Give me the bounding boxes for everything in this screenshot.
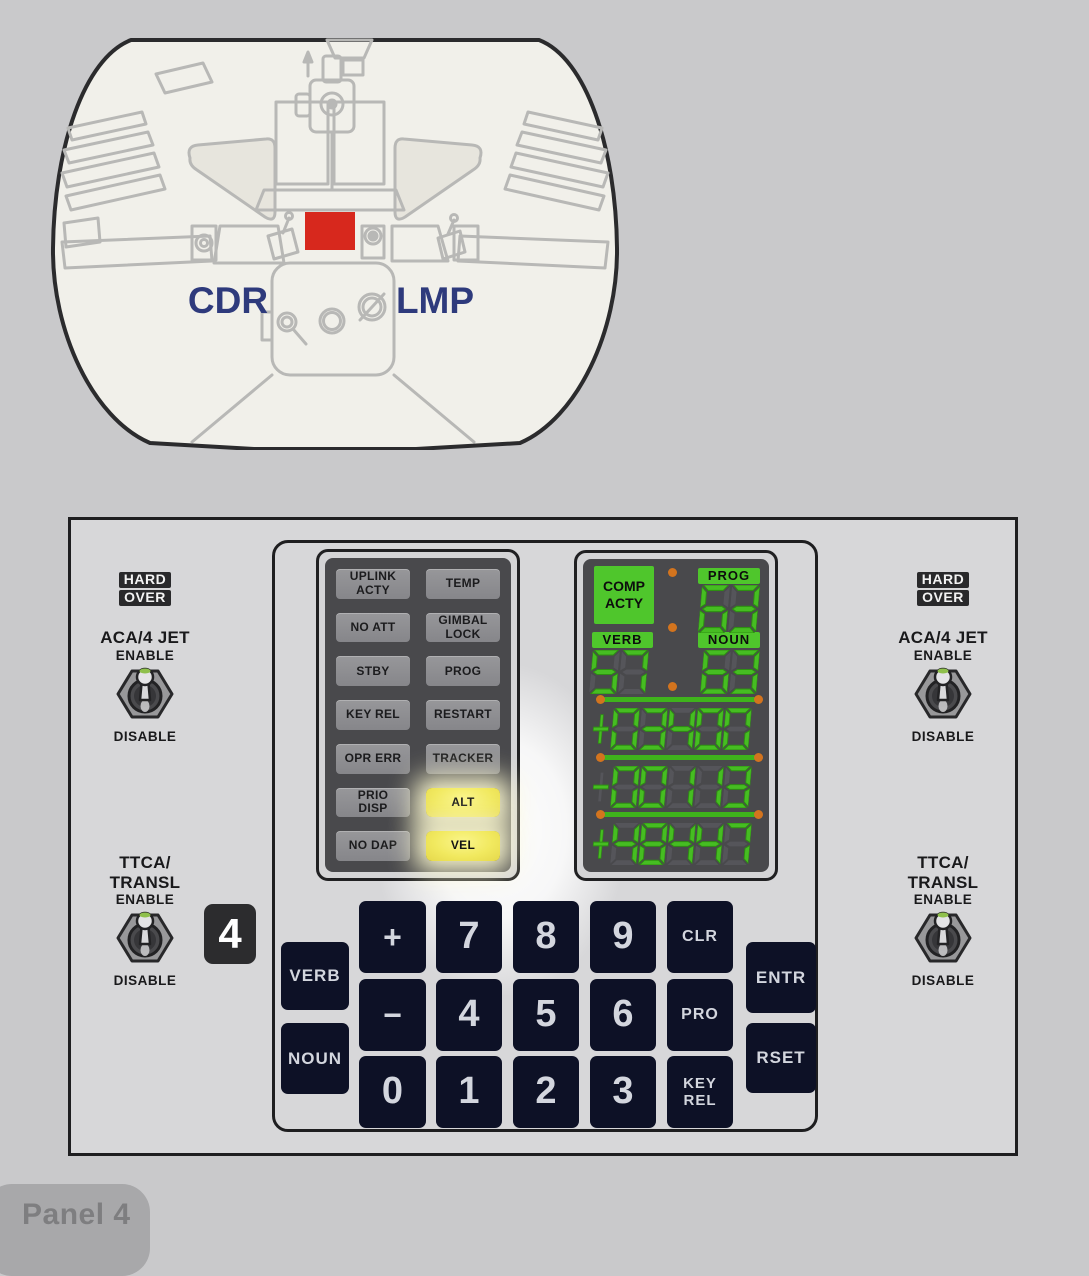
ttca-transl-toggle-left[interactable] [115, 909, 175, 967]
disable-label: DISABLE [888, 729, 998, 744]
light-uplink-acty: UPLINK ACTY [336, 569, 410, 599]
register-3 [589, 823, 752, 865]
separator-dot [754, 753, 763, 762]
minus-key[interactable]: − [359, 979, 426, 1051]
hard-label: HARD [917, 572, 969, 588]
ttca-transl-toggle-right[interactable] [913, 909, 973, 967]
disable-label: DISABLE [888, 973, 998, 988]
light-prog: PROG [426, 656, 500, 686]
status-light-panel: UPLINK ACTY TEMP NO ATT GIMBAL LOCK STBY… [316, 549, 520, 881]
register-2 [589, 766, 752, 808]
key-rel-key[interactable]: KEY REL [667, 1056, 733, 1128]
enable-label: ENABLE [888, 892, 998, 907]
digit-9-key[interactable]: 9 [590, 901, 656, 973]
digit-8-key[interactable]: 8 [513, 901, 579, 973]
aca-4jet-title: ACA/4 JET [888, 628, 998, 648]
status-lights-grid: UPLINK ACTY TEMP NO ATT GIMBAL LOCK STBY… [336, 569, 500, 861]
aca-4jet-toggle-right[interactable] [913, 665, 973, 723]
register-separator [603, 755, 756, 760]
light-no-att: NO ATT [336, 613, 410, 643]
entr-key[interactable]: ENTR [746, 942, 816, 1013]
hard-over-badge: HARDOVER [90, 572, 200, 606]
prog-digits [698, 585, 760, 633]
separator-dot [668, 568, 677, 577]
left-ttca-control-group: TTCA/ TRANSL ENABLE DISABLE [90, 853, 200, 988]
disable-label: DISABLE [90, 729, 200, 744]
ttca-transl-title: TTCA/ TRANSL [90, 853, 200, 892]
light-tracker: TRACKER [426, 744, 500, 774]
light-prio-disp: PRIO DISP [336, 788, 410, 818]
digit-4-key[interactable]: 4 [436, 979, 502, 1051]
hard-over-badge: HARDOVER [888, 572, 998, 606]
digit-1-key[interactable]: 1 [436, 1056, 502, 1128]
plus-key[interactable]: + [359, 901, 426, 973]
separator-dot [668, 682, 677, 691]
register-1 [589, 708, 752, 750]
status-light-screen: UPLINK ACTY TEMP NO ATT GIMBAL LOCK STBY… [325, 558, 511, 872]
light-key-rel: KEY REL [336, 700, 410, 730]
aca-4jet-title: ACA/4 JET [90, 628, 200, 648]
register-separator [603, 697, 756, 702]
verb-digits [589, 650, 649, 694]
pro-key[interactable]: PRO [667, 979, 733, 1051]
over-label: OVER [917, 590, 969, 606]
enable-label: ENABLE [90, 892, 200, 907]
disable-label: DISABLE [90, 973, 200, 988]
aca-4jet-toggle-left[interactable] [115, 665, 175, 723]
comp-acty-light: COMP ACTY [594, 566, 654, 624]
cdr-label: CDR [188, 280, 268, 321]
verb-key[interactable]: VERB [281, 942, 349, 1010]
rset-key[interactable]: RSET [746, 1023, 816, 1093]
panel-4-footer-label: Panel 4 [22, 1198, 131, 1232]
lmp-label: LMP [396, 280, 474, 321]
panel-4-footer-badge: Panel 4 [0, 1184, 150, 1276]
separator-dot [754, 695, 763, 704]
ttca-transl-title: TTCA/ TRANSL [888, 853, 998, 892]
separator-dot [596, 753, 605, 762]
light-opr-err: OPR ERR [336, 744, 410, 774]
digit-7-key[interactable]: 7 [436, 901, 502, 973]
register-separator [603, 812, 756, 817]
dsky-location-highlight [305, 212, 355, 250]
enable-label: ENABLE [888, 648, 998, 663]
dsky-display-panel: COMP ACTY PROG VERB NOUN [574, 550, 778, 881]
light-stby: STBY [336, 656, 410, 686]
light-temp: TEMP [426, 569, 500, 599]
digit-6-key[interactable]: 6 [590, 979, 656, 1051]
digit-0-key[interactable]: 0 [359, 1056, 426, 1128]
light-gimbal-lock: GIMBAL LOCK [426, 613, 500, 643]
separator-dot [754, 810, 763, 819]
separator-dot [596, 810, 605, 819]
light-alt: ALT [426, 788, 500, 818]
separator-dot [596, 695, 605, 704]
hard-label: HARD [119, 572, 171, 588]
prog-label: PROG [698, 568, 760, 584]
right-aca-control-group: HARDOVER ACA/4 JET ENABLE DISABLE [888, 570, 998, 744]
digit-5-key[interactable]: 5 [513, 979, 579, 1051]
noun-label: NOUN [698, 632, 760, 648]
enable-label: ENABLE [90, 648, 200, 663]
digit-2-key[interactable]: 2 [513, 1056, 579, 1128]
verb-label: VERB [592, 632, 653, 648]
over-label: OVER [119, 590, 171, 606]
noun-digits [700, 650, 760, 694]
light-vel: VEL [426, 831, 500, 861]
cockpit-diagram: CDR LMP [40, 30, 630, 450]
right-ttca-control-group: TTCA/ TRANSL ENABLE DISABLE [888, 853, 998, 988]
light-restart: RESTART [426, 700, 500, 730]
clr-key[interactable]: CLR [667, 901, 733, 973]
noun-key[interactable]: NOUN [281, 1023, 349, 1094]
separator-dot [668, 623, 677, 632]
light-no-dap: NO DAP [336, 831, 410, 861]
left-aca-control-group: HARDOVER ACA/4 JET ENABLE DISABLE [90, 570, 200, 744]
panel-number-badge: 4 [204, 904, 256, 964]
digit-3-key[interactable]: 3 [590, 1056, 656, 1128]
